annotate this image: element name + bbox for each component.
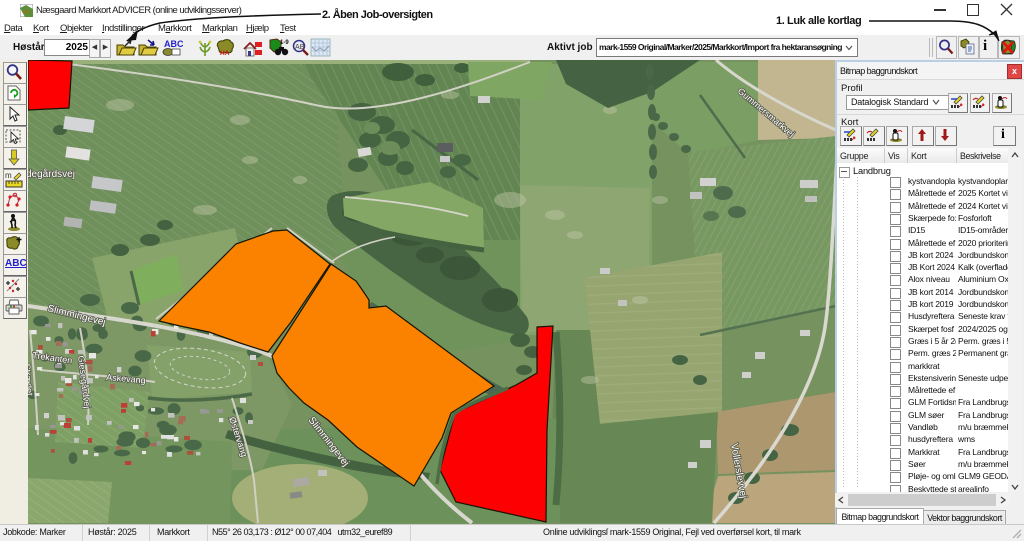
svg-text:HA: HA: [220, 50, 230, 57]
svg-text:1-9: 1-9: [280, 40, 289, 46]
svg-text:m: m: [5, 171, 12, 180]
svg-text:degårdsvej: degårdsvej: [28, 168, 75, 180]
svg-text:ABC: ABC: [164, 39, 183, 49]
